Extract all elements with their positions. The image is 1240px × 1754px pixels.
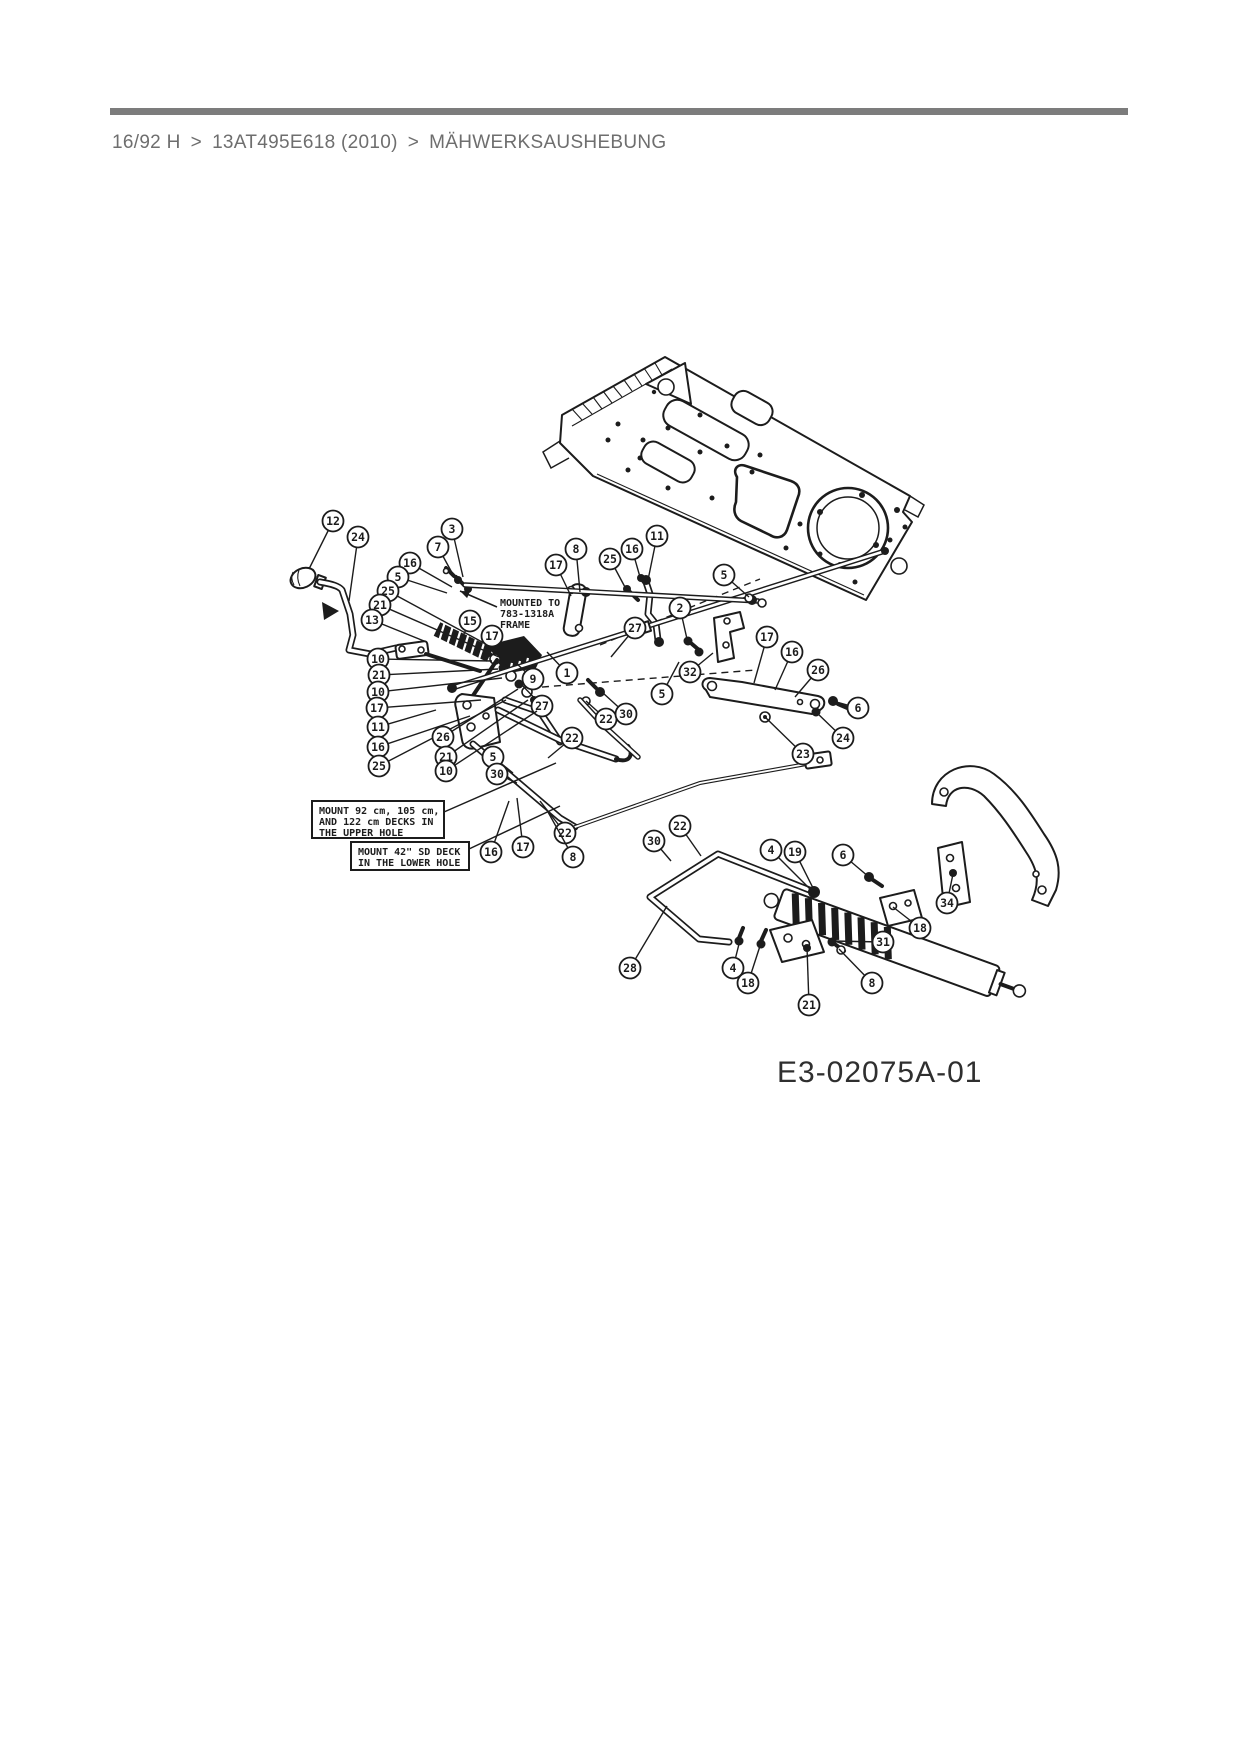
callout-number: 16 [625,542,639,556]
callout-number: 5 [659,687,666,701]
callout-number: 17 [370,701,384,715]
callout-number: 21 [372,668,386,682]
callout-number: 22 [565,731,579,745]
callout-number: 22 [599,712,613,726]
callout-number: 16 [403,556,417,570]
callout-number: 27 [628,621,642,635]
drawing-number: E3-02075A-01 [777,1056,982,1089]
callout-number: 19 [788,845,802,859]
callout-number: 24 [351,530,365,544]
callout-number: 5 [395,570,402,584]
callout-number: 12 [326,514,340,528]
callout-number: 10 [439,764,453,778]
frame-mount-bolts [444,568,473,593]
note-text: MOUNTED TO783-1318AFRAME [500,598,560,631]
callout-number: 18 [741,976,755,990]
callout-number: 8 [573,542,580,556]
callout-number: 30 [619,707,633,721]
callout-number: 21 [802,998,816,1012]
callout-number: 17 [549,558,563,572]
callout-number: 3 [449,522,456,536]
callout-number: 16 [484,845,498,859]
callout-number: 17 [485,629,499,643]
callout-number: 30 [647,834,661,848]
callout-number: 25 [603,552,617,566]
callout-number: 11 [650,529,664,543]
callout-number: 13 [365,613,379,627]
callout-number: 18 [913,921,927,935]
callout-number: 17 [516,840,530,854]
callout-number: 25 [372,759,386,773]
note-arrowhead [460,591,470,598]
callout-number: 34 [940,896,954,910]
callout-number: 32 [683,665,697,679]
direction-arrow [322,602,339,620]
callout-leader [378,659,492,661]
mount-bracket [684,612,745,662]
callout-number: 17 [760,630,774,644]
callout-number: 16 [371,740,385,754]
callout-number: 6 [855,701,862,715]
callout-number: 23 [796,747,810,761]
callout-number: 4 [768,843,775,857]
callout-number: 15 [463,614,477,628]
callout-number: 8 [869,976,876,990]
parts-diagram: MOUNTED TO783-1318AFRAMEMOUNT 92 cm, 105… [0,0,1240,1754]
callout-number: 7 [435,540,442,554]
callout-number: 28 [623,961,637,975]
callout-number: 16 [785,645,799,659]
callout-number: 31 [876,935,890,949]
callout-number: 27 [535,699,549,713]
parts-catalog-page: 16/92 H>13AT495E618 (2010)>MÄHWERKSAUSHE… [0,0,1240,1754]
callout-number: 24 [836,731,850,745]
callout-number: 5 [721,568,728,582]
callout-number: 9 [530,672,537,686]
callout-number: 11 [371,720,385,734]
callout-number: 2 [677,601,684,615]
callout-number: 6 [840,848,847,862]
callout-number: 30 [490,767,504,781]
callout-number: 26 [436,730,450,744]
callout-number: 5 [490,750,497,764]
callout-leader [378,678,502,692]
callout-number: 4 [730,961,737,975]
note-text: MOUNT 42" SD DECKIN THE LOWER HOLE [358,847,460,869]
callout-number: 8 [570,850,577,864]
callout-number: 22 [673,819,687,833]
callout-number: 1 [564,666,571,680]
callout-number: 26 [811,663,825,677]
